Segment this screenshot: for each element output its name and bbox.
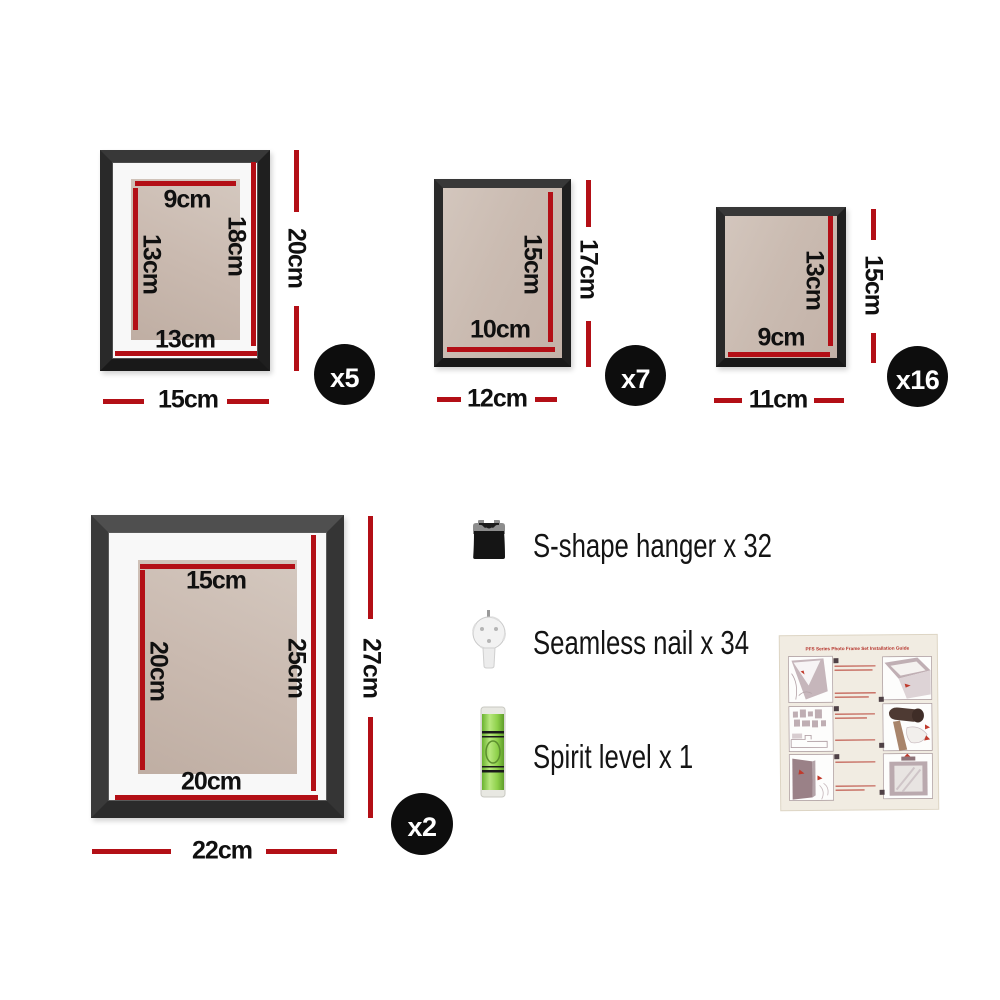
svg-text:PFS Series Photo Frame Set Ins: PFS Series Photo Frame Set Installation … xyxy=(805,646,909,652)
